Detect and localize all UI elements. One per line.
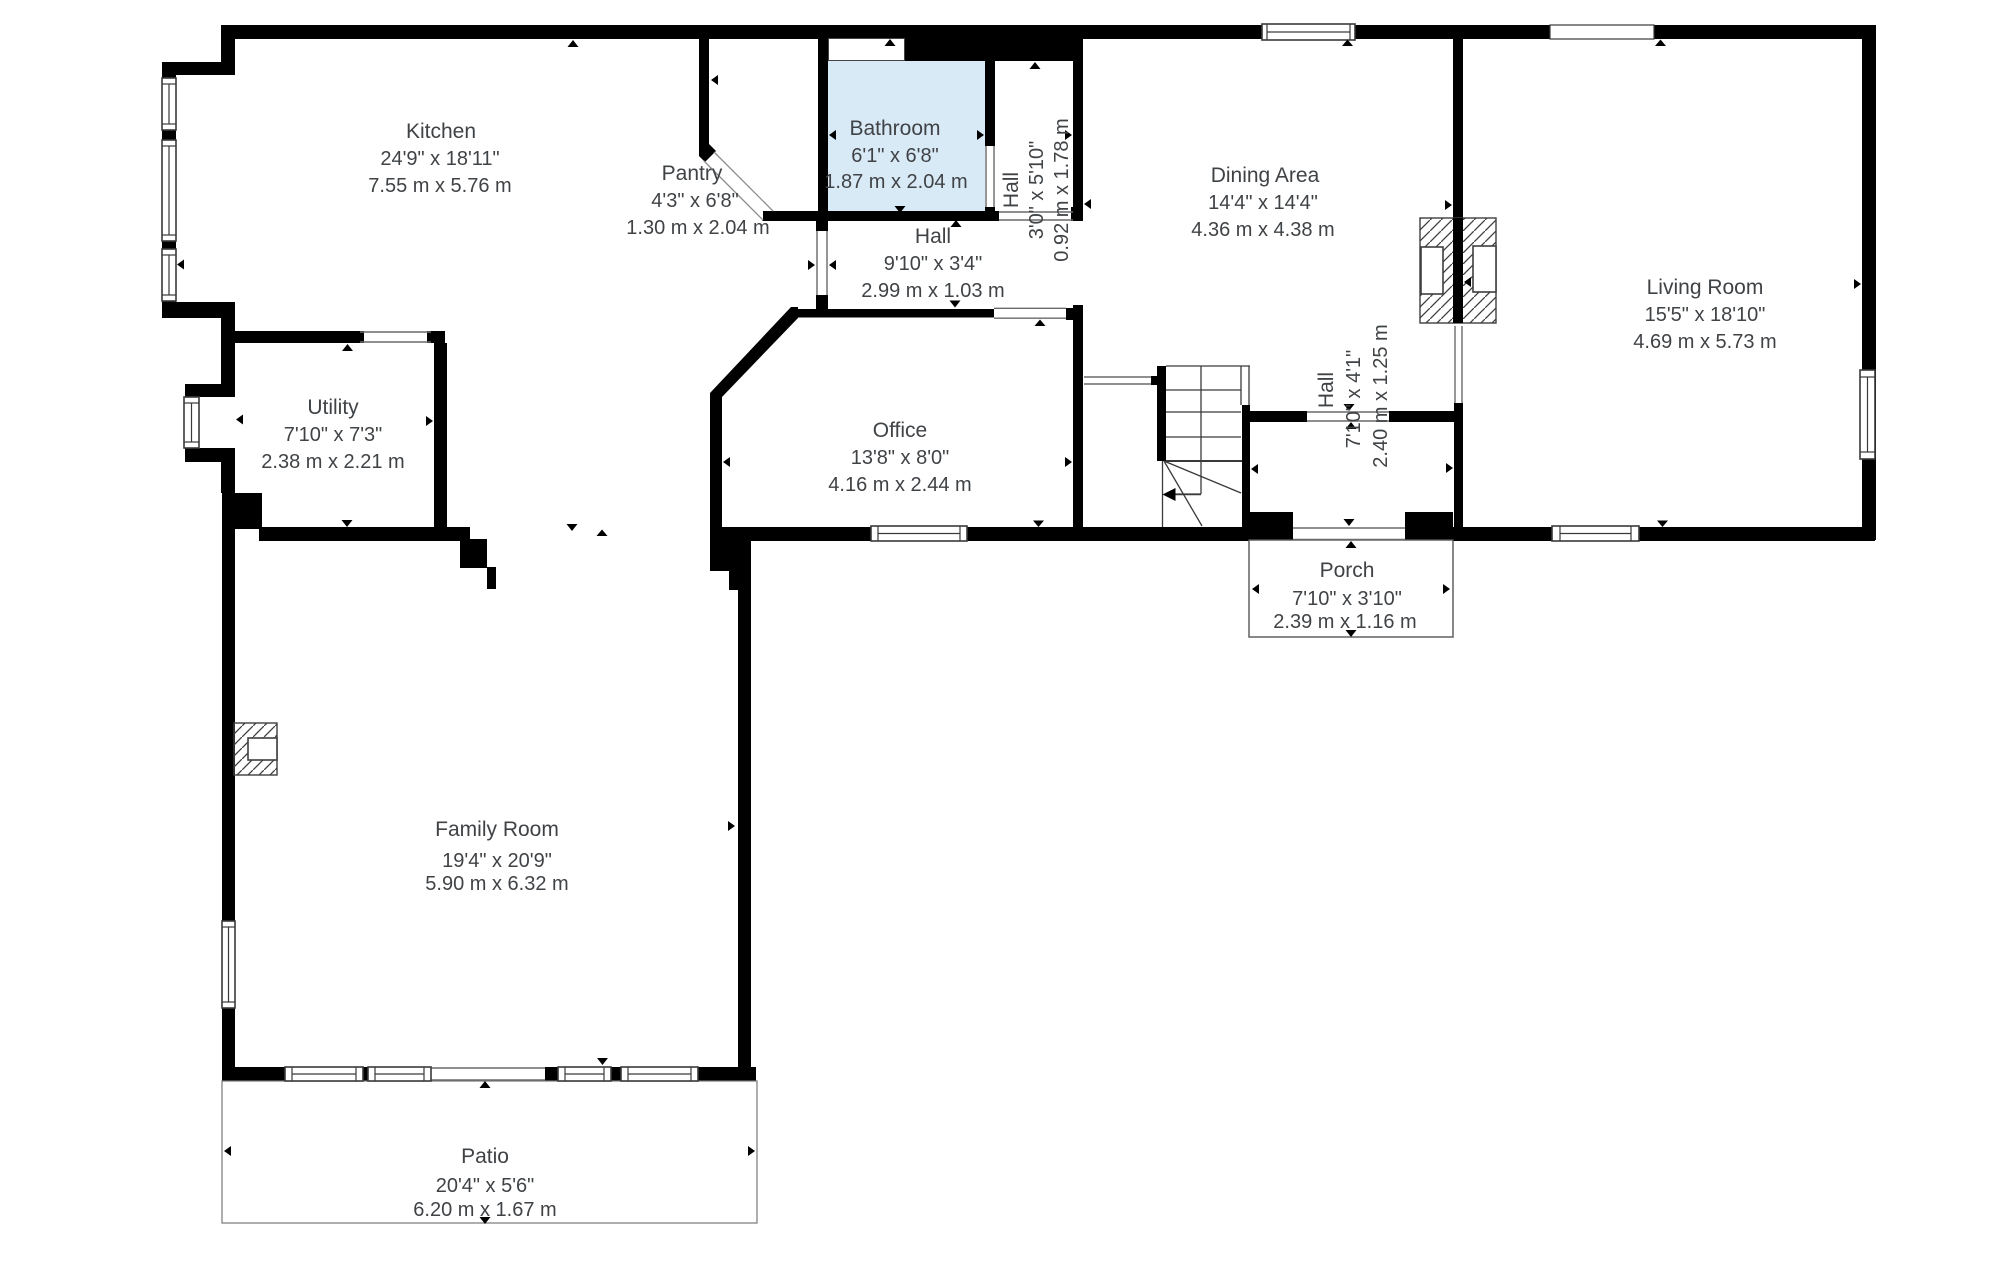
svg-text:20'4" x 5'6": 20'4" x 5'6" xyxy=(436,1175,535,1197)
svg-text:7'10" x 3'10": 7'10" x 3'10" xyxy=(1292,588,1402,610)
svg-text:Utility: Utility xyxy=(307,396,359,419)
svg-text:Dining Area: Dining Area xyxy=(1211,164,1320,187)
svg-text:7'10" x 4'1": 7'10" x 4'1" xyxy=(1343,350,1365,449)
svg-text:Porch: Porch xyxy=(1320,559,1375,582)
svg-text:Bathroom: Bathroom xyxy=(849,117,940,140)
svg-text:14'4" x 14'4": 14'4" x 14'4" xyxy=(1208,192,1318,214)
svg-text:Pantry: Pantry xyxy=(662,162,723,185)
svg-text:9'10" x 3'4": 9'10" x 3'4" xyxy=(884,253,983,275)
svg-text:2.99 m x 1.03 m: 2.99 m x 1.03 m xyxy=(861,280,1004,302)
svg-text:7'10" x 7'3": 7'10" x 7'3" xyxy=(284,424,383,446)
svg-text:15'5" x 18'10": 15'5" x 18'10" xyxy=(1645,304,1766,326)
svg-text:4.69 m x 5.73 m: 4.69 m x 5.73 m xyxy=(1633,331,1776,353)
svg-text:Office: Office xyxy=(873,419,927,442)
svg-text:5.90 m x 6.32 m: 5.90 m x 6.32 m xyxy=(425,873,568,895)
svg-text:4.36 m x 4.38 m: 4.36 m x 4.38 m xyxy=(1191,219,1334,241)
svg-text:2.40 m x 1.25 m: 2.40 m x 1.25 m xyxy=(1370,324,1392,467)
svg-text:6'1" x 6'8": 6'1" x 6'8" xyxy=(851,145,938,167)
svg-text:Patio: Patio xyxy=(461,1145,509,1168)
svg-text:3'0" x 5'10": 3'0" x 5'10" xyxy=(1026,141,1048,240)
svg-text:4.16 m x 2.44 m: 4.16 m x 2.44 m xyxy=(828,474,971,496)
svg-text:Hall: Hall xyxy=(915,225,951,248)
svg-text:4'3" x 6'8": 4'3" x 6'8" xyxy=(651,190,738,212)
svg-text:1.30 m x 2.04 m: 1.30 m x 2.04 m xyxy=(626,217,769,239)
svg-text:24'9" x 18'11": 24'9" x 18'11" xyxy=(380,148,499,170)
svg-text:Family Room: Family Room xyxy=(435,818,559,841)
svg-text:6.20 m x 1.67 m: 6.20 m x 1.67 m xyxy=(413,1199,556,1221)
svg-text:19'4" x 20'9": 19'4" x 20'9" xyxy=(442,850,552,872)
svg-text:Hall: Hall xyxy=(1000,172,1023,208)
svg-text:1.87 m x 2.04 m: 1.87 m x 2.04 m xyxy=(824,171,967,193)
svg-text:7.55 m x 5.76 m: 7.55 m x 5.76 m xyxy=(368,175,511,197)
svg-text:0.92 m x 1.78 m: 0.92 m x 1.78 m xyxy=(1051,118,1073,261)
svg-text:13'8" x 8'0": 13'8" x 8'0" xyxy=(851,447,950,469)
svg-text:2.38 m x 2.21 m: 2.38 m x 2.21 m xyxy=(261,451,404,473)
svg-text:Living Room: Living Room xyxy=(1647,276,1764,299)
svg-text:2.39 m x 1.16 m: 2.39 m x 1.16 m xyxy=(1273,611,1416,633)
svg-text:Kitchen: Kitchen xyxy=(406,120,476,143)
svg-text:Hall: Hall xyxy=(1315,372,1338,408)
